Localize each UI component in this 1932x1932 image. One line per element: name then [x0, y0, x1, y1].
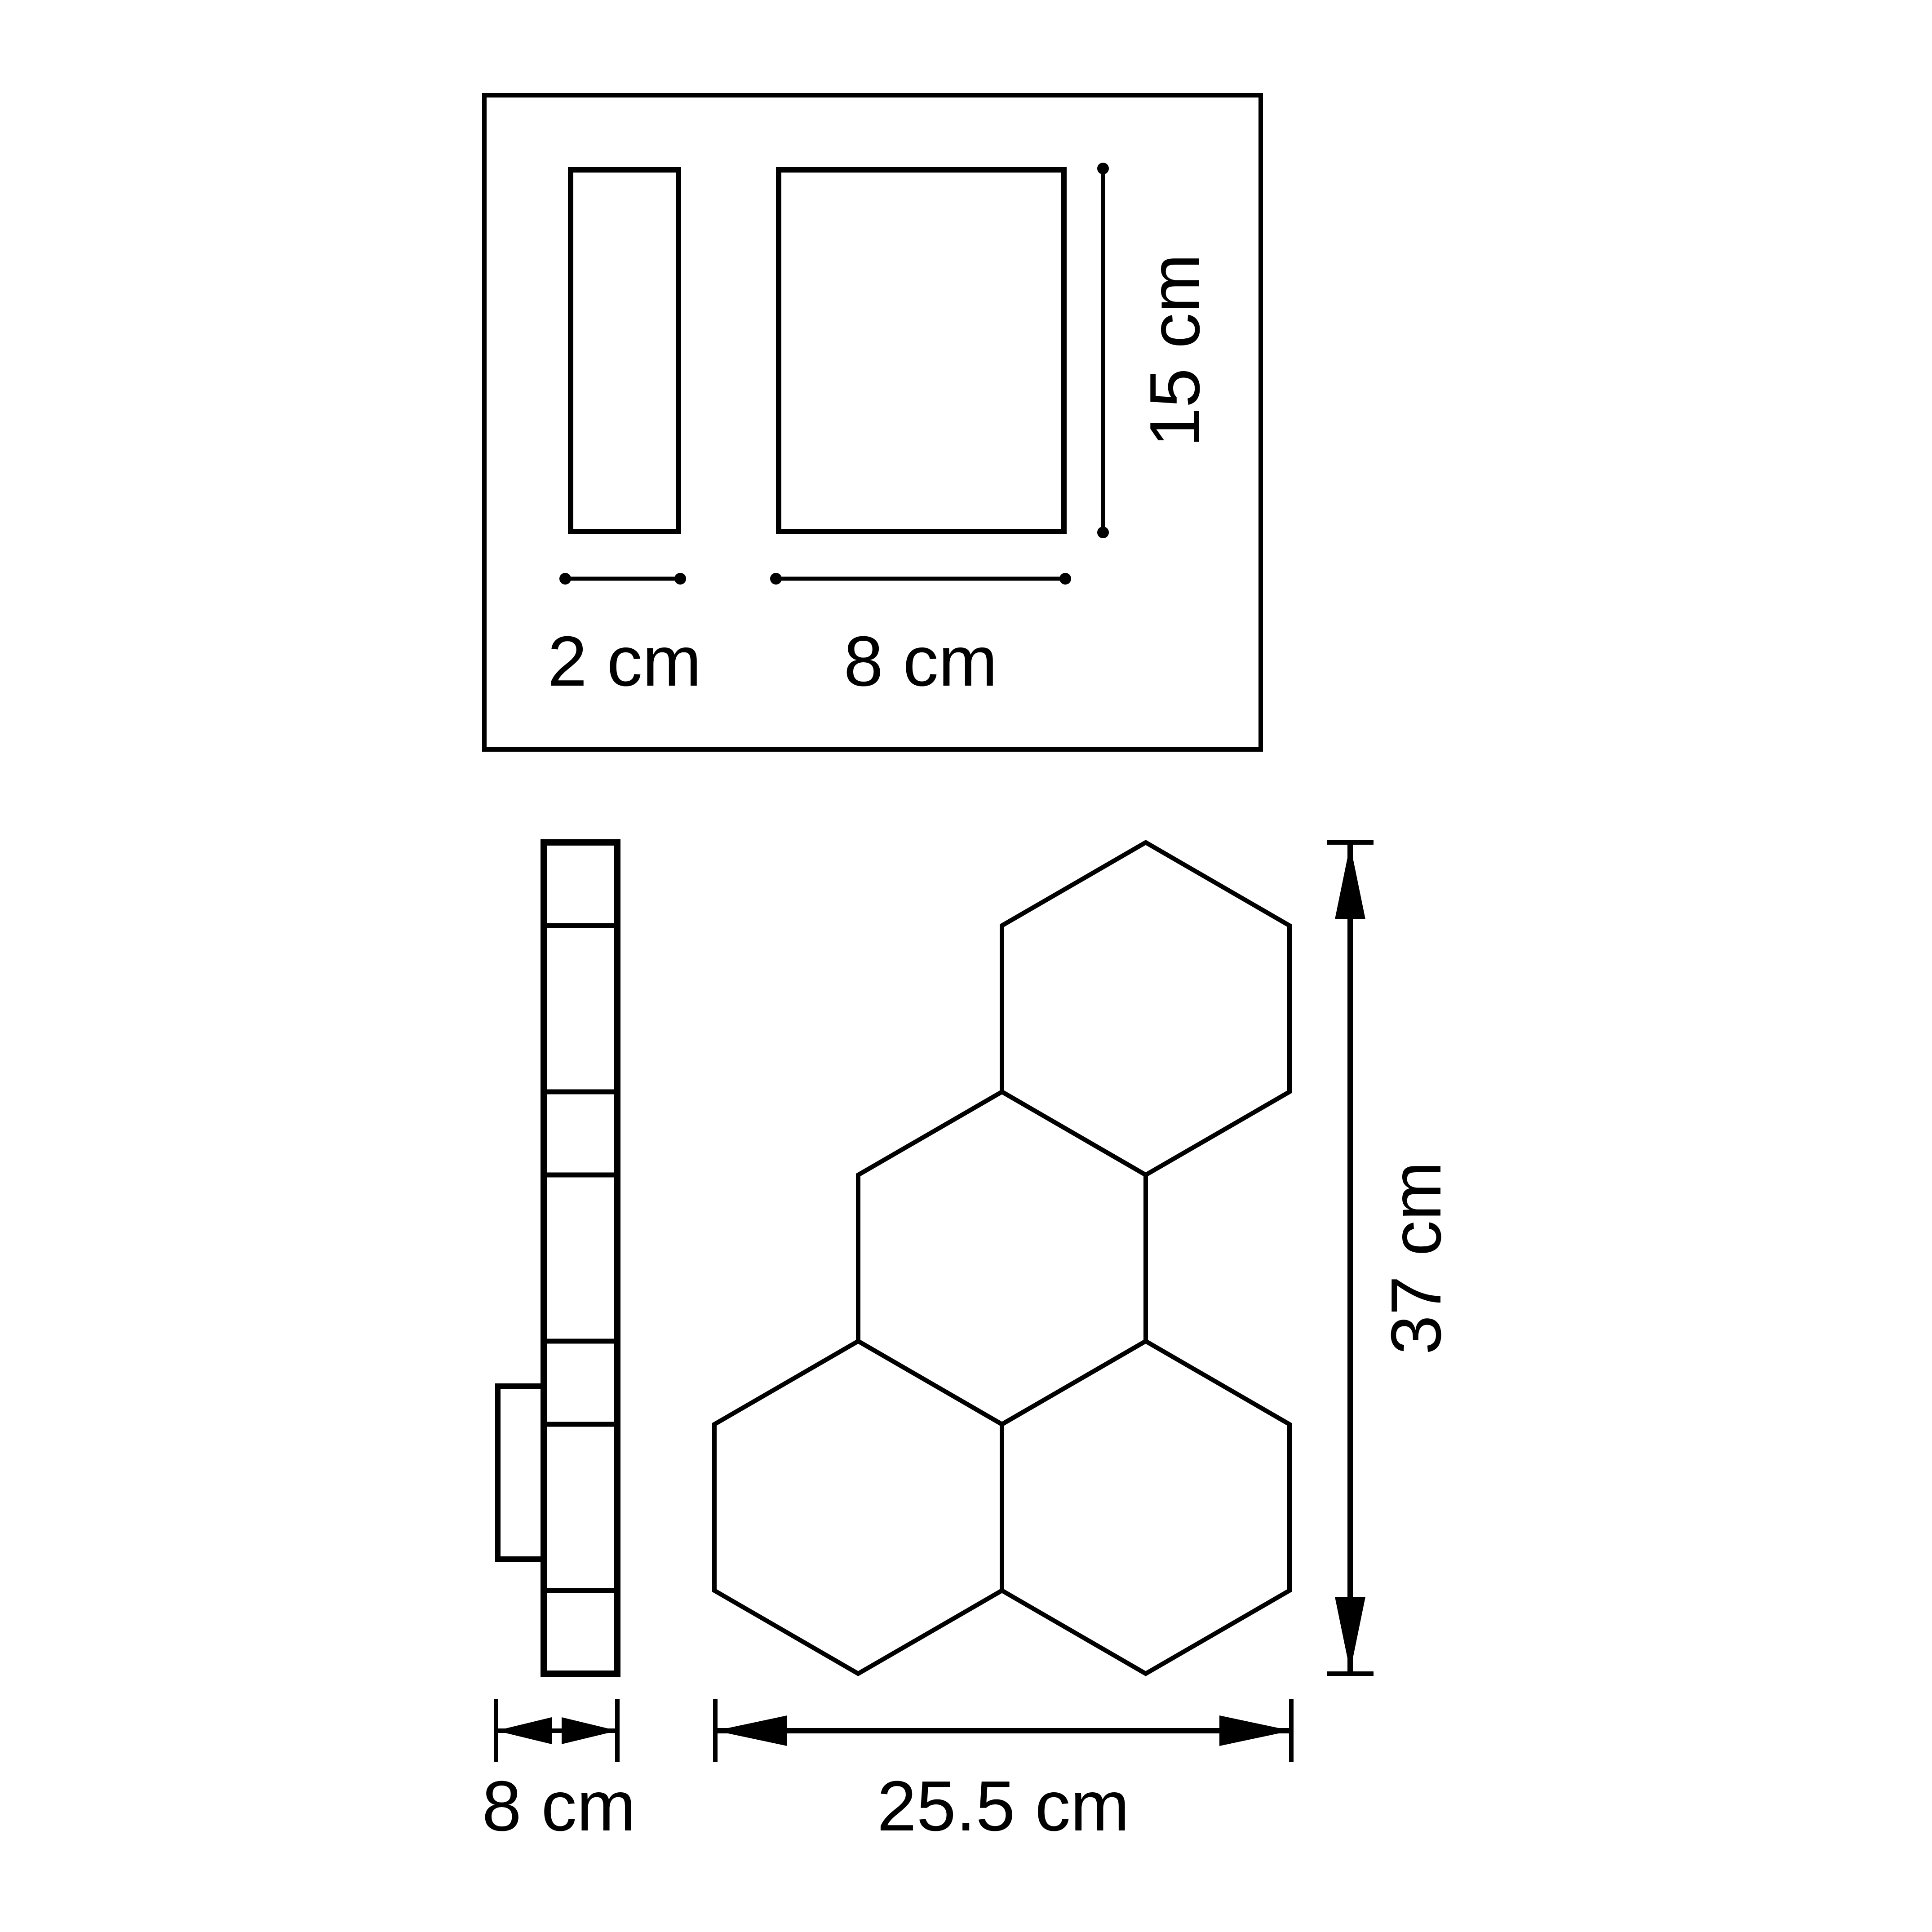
lamp-front-view: 37 cm 25.5 cm [714, 842, 1456, 1846]
module-front-rect [779, 170, 1064, 532]
module-side-profile-rect [571, 170, 678, 532]
dimension-37cm-label: 37 cm [1377, 1161, 1456, 1355]
drawing-page: 15 cm 2 cm 8 cm [0, 0, 1932, 1932]
dimension-15cm-dot-bottom [1097, 527, 1109, 538]
dimension-15cm-dot-top [1097, 163, 1109, 174]
dimension-8cm-module: 8 cm [770, 573, 1071, 701]
technical-drawing-svg: 15 cm 2 cm 8 cm [0, 0, 1932, 1932]
dimension-8cm-depth: 8 cm [482, 1699, 636, 1846]
wall-mount-rect [498, 1386, 544, 1559]
dimension-37cm-arrow-up [1335, 845, 1365, 919]
dimension-37cm-arrow-down [1335, 1597, 1365, 1671]
tile-stack-outline [544, 842, 617, 1674]
dimension-25-5cm-label: 25.5 cm [877, 1767, 1130, 1846]
module-detail-box: 15 cm 2 cm 8 cm [484, 95, 1261, 749]
dimension-2cm-label: 2 cm [548, 622, 701, 701]
lamp-side-view: 8 cm [482, 842, 636, 1846]
dimension-8cm-depth-arrow-right [562, 1717, 617, 1744]
dimension-2cm-dot-right [674, 573, 686, 585]
dimension-25-5cm-arrow-right [1219, 1715, 1291, 1746]
dimension-8cm-module-dot-right [1059, 573, 1071, 585]
dimension-15cm-label: 15 cm [1135, 254, 1214, 447]
dimension-25-5cm-arrow-left [715, 1715, 787, 1746]
dimension-8cm-module-label: 8 cm [844, 622, 997, 701]
dimension-8cm-depth-label: 8 cm [482, 1767, 636, 1846]
dimension-37cm: 37 cm [1327, 842, 1456, 1674]
dimension-15cm: 15 cm [1097, 163, 1214, 538]
dimension-2cm: 2 cm [548, 573, 701, 701]
dimension-8cm-depth-arrow-left [496, 1717, 552, 1744]
dimension-8cm-module-dot-left [770, 573, 782, 585]
dimension-2cm-dot-left [559, 573, 571, 585]
dimension-25-5cm: 25.5 cm [715, 1699, 1291, 1846]
